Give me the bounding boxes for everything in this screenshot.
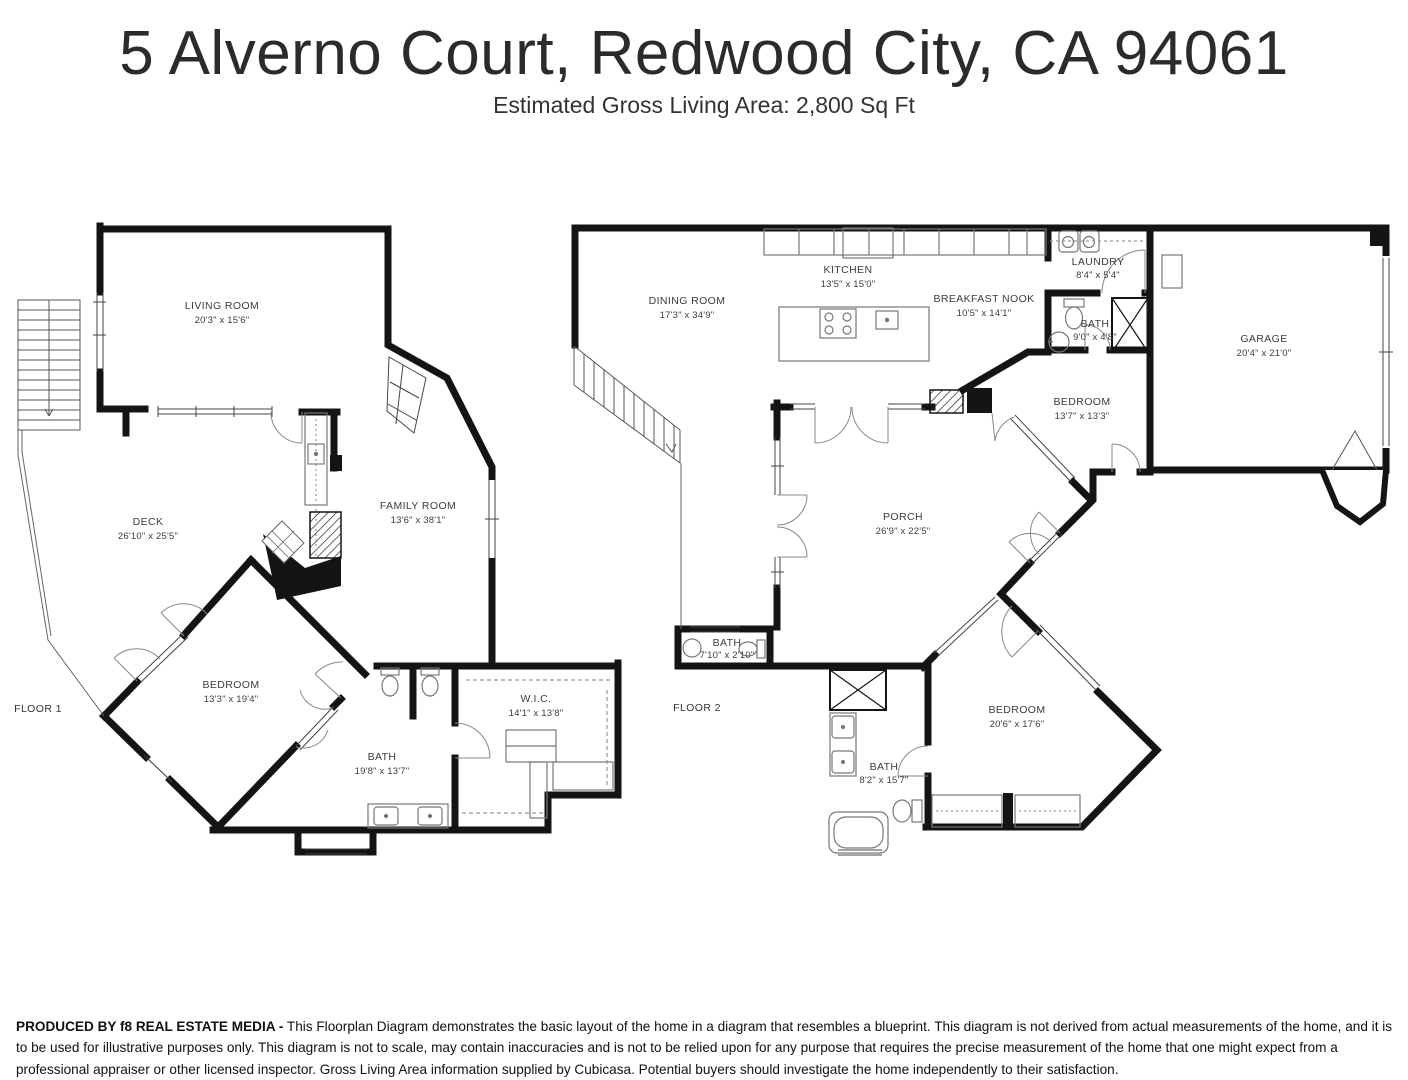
floor2-labels: FLOOR 2 DINING ROOM 17'3" x 34'9" KITCHE… <box>649 256 1292 786</box>
floor1-label: FLOOR 1 <box>14 703 62 715</box>
room-dims-bath-82: 8'2" x 15'7" <box>859 775 908 786</box>
floor2-solid-blocks <box>967 228 1386 828</box>
floor2-chimney <box>930 390 963 413</box>
room-label-laundry: LAUNDRY <box>1072 256 1125 268</box>
room-dims-breakfast-nook: 10'5" x 14'1" <box>957 308 1012 319</box>
room-dims-deck: 26'10" x 25'5" <box>118 531 178 542</box>
room-label-wic: W.I.C. <box>521 693 552 705</box>
room-dims-living-room: 20'3" x 15'6" <box>195 315 250 326</box>
disclaimer-producer: PRODUCED BY f8 REAL ESTATE MEDIA - <box>16 1019 283 1034</box>
room-label-garage: GARAGE <box>1240 333 1287 345</box>
room-dims-bath-9: 9'0" x 4'8" <box>1073 332 1117 343</box>
floor2-stairs <box>574 346 680 463</box>
room-dims-bedroom-137: 13'7" x 13'3" <box>1055 411 1110 422</box>
room-label-deck: DECK <box>133 516 164 528</box>
room-dims-laundry: 8'4" x 5'4" <box>1076 270 1120 281</box>
room-dims-family-room: 13'6" x 38'1" <box>391 515 446 526</box>
room-dims-garage: 20'4" x 21'0" <box>1237 348 1292 359</box>
room-dims-kitchen: 13'5" x 15'0" <box>821 279 876 290</box>
room-dims-wic: 14'1" x 13'8" <box>509 708 564 719</box>
floor1-stairs <box>18 300 80 430</box>
floor2-entry-bay <box>1322 470 1386 522</box>
room-dims-dining-room: 17'3" x 34'9" <box>660 310 715 321</box>
room-label-family-room: FAMILY ROOM <box>380 500 456 512</box>
floorplan-svg: FLOOR 1 LIVING ROOM 20'3" x 15'6" DECK 2… <box>0 0 1408 1080</box>
room-dims-bath-f1: 19'8" x 13'7" <box>355 766 410 777</box>
room-label-kitchen: KITCHEN <box>824 264 873 276</box>
room-dims-bedroom-f1: 13'3" x 19'4" <box>204 694 259 705</box>
room-label-bedroom-206: BEDROOM <box>988 704 1045 716</box>
room-label-bedroom-f1: BEDROOM <box>202 679 259 691</box>
floor2-label: FLOOR 2 <box>673 702 721 714</box>
room-label-bath-f1: BATH <box>368 751 397 763</box>
room-label-porch: PORCH <box>883 511 923 523</box>
room-label-living-room: LIVING ROOM <box>185 300 259 312</box>
room-label-bath-9: BATH <box>1081 318 1110 330</box>
room-dims-porch: 26'9" x 22'5" <box>876 526 931 537</box>
floor1-fixtures <box>305 413 613 854</box>
floorplan-page: { "header": { "title": "5 Alverno Court,… <box>0 0 1408 1080</box>
room-dims-bath-710: 7'10" x 2'10" <box>700 650 755 661</box>
disclaimer: PRODUCED BY f8 REAL ESTATE MEDIA - This … <box>16 1016 1394 1080</box>
room-label-dining-room: DINING ROOM <box>649 295 726 307</box>
room-label-bath-82: BATH <box>870 761 899 773</box>
room-label-bedroom-137: BEDROOM <box>1053 396 1110 408</box>
room-dims-bedroom-206: 20'6" x 17'6" <box>990 719 1045 730</box>
room-label-bath-710: BATH <box>713 637 742 649</box>
room-label-breakfast-nook: BREAKFAST NOOK <box>933 293 1034 305</box>
